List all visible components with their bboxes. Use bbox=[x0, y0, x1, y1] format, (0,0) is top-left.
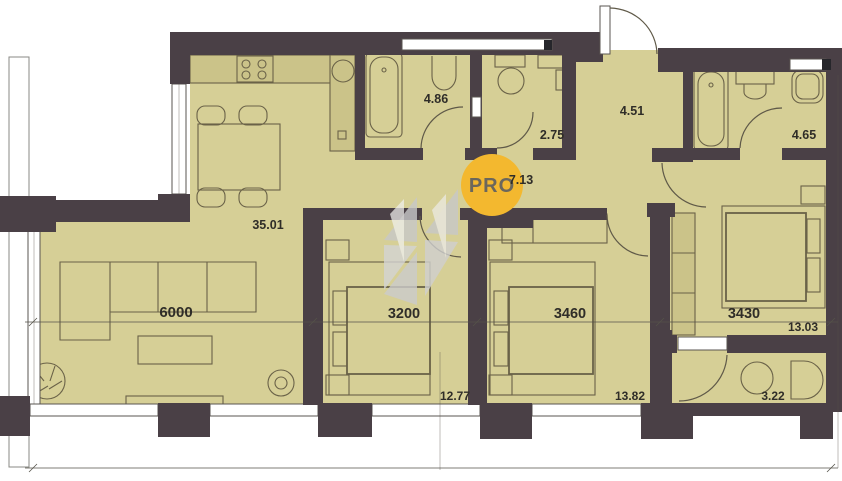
label-bedroom-2-area: 13.82 bbox=[615, 389, 645, 403]
entry-door-swing bbox=[610, 8, 657, 54]
window bbox=[790, 59, 826, 70]
label-bedroom-1-area: 12.77 bbox=[440, 389, 470, 403]
label-hall-area: 4.51 bbox=[620, 104, 644, 118]
label-bedroom-1-width: 3200 bbox=[388, 306, 420, 322]
label-living-area: 35.01 bbox=[252, 218, 283, 232]
duct bbox=[472, 97, 481, 117]
window bbox=[30, 404, 158, 416]
wardrobe bbox=[672, 213, 695, 335]
label-wc-area: 2.75 bbox=[540, 128, 564, 142]
label-bedroom-3-width: 3430 bbox=[728, 306, 760, 322]
label-bathroom-3-area: 3.22 bbox=[761, 389, 785, 403]
label-bedroom-3-area: 13.03 bbox=[788, 320, 818, 334]
label-bathroom-1-area: 4.86 bbox=[424, 92, 448, 106]
window bbox=[372, 404, 480, 416]
kitchen-cabinet bbox=[330, 55, 355, 151]
window bbox=[210, 404, 318, 416]
threshold bbox=[678, 337, 727, 350]
label-bedroom-2-width: 3460 bbox=[554, 306, 586, 322]
label-living-width: 6000 bbox=[159, 304, 192, 321]
label-corridor-area: 7.13 bbox=[509, 173, 533, 187]
floor-plan: 35.01 4.86 2.75 4.51 4.65 3200 3460 3430… bbox=[0, 0, 842, 481]
label-bathroom-2-area: 4.65 bbox=[792, 128, 816, 142]
entry-door-leaf[interactable] bbox=[600, 6, 610, 54]
window bbox=[402, 39, 552, 50]
window bbox=[532, 404, 641, 416]
